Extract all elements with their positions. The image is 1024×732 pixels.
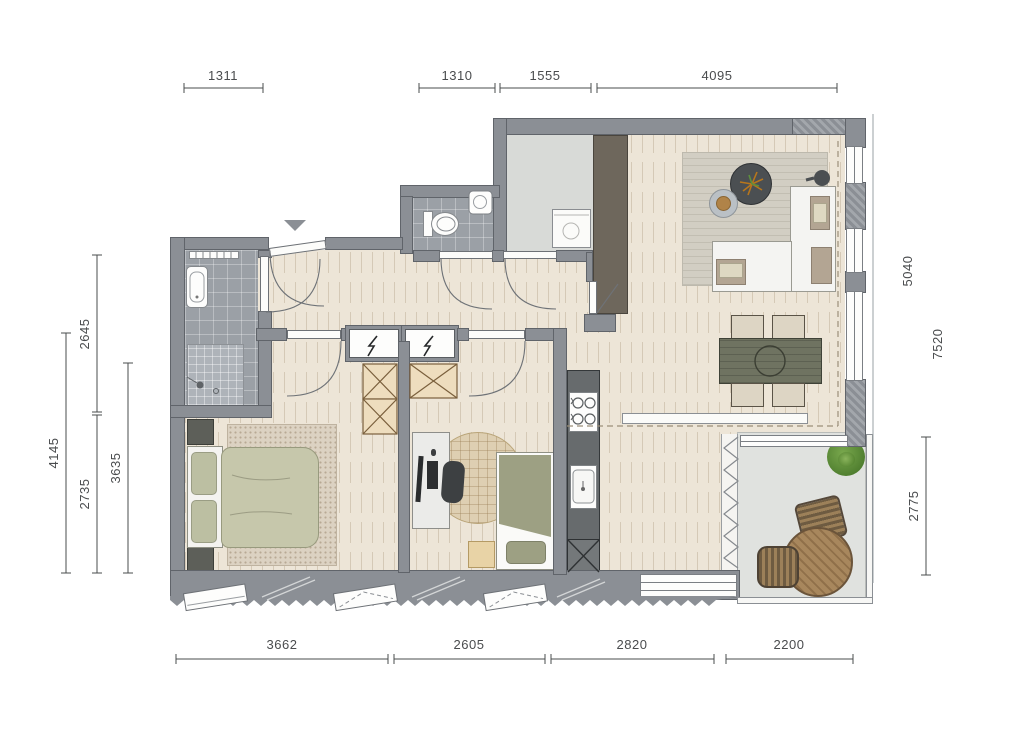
wall-bathroom-bottom [170, 405, 272, 418]
balcony-railing-bottom [737, 597, 873, 604]
electrical-cabinet [405, 329, 455, 358]
wall-wc-top [400, 185, 500, 198]
balcony-railing-right [866, 434, 873, 603]
tv-cabinet [593, 135, 628, 314]
living-door-leaf [589, 281, 597, 314]
towel-radiator [189, 251, 239, 259]
wc-door-leaf [439, 251, 493, 259]
bed-duvet [221, 447, 319, 548]
dim-label-left-4145: 4145 [46, 438, 61, 469]
wall-hall-south-a [256, 328, 287, 341]
wall-wc-hall-a [413, 250, 440, 262]
window-balcony [740, 435, 848, 447]
dining-chair [731, 315, 764, 339]
nightstand [187, 545, 214, 571]
wall-right-pillar-hatched [845, 182, 866, 230]
small-round-table [814, 170, 830, 186]
electrical-cabinet [349, 329, 399, 358]
sofa-throw [719, 263, 743, 278]
wall-entrance-right [325, 237, 403, 250]
pouf [468, 541, 495, 568]
toilet-bowl [431, 212, 459, 236]
bed-pillow [191, 500, 217, 543]
shower-area [187, 344, 244, 406]
window-right [846, 228, 863, 273]
dim-label-bottom-3: 2820 [617, 637, 648, 652]
washing-machine [552, 209, 591, 248]
wall-kitchen [553, 328, 567, 575]
sofa-cushion [811, 247, 832, 284]
floor-plan: 1311 1310 1555 4095 3662 2605 2820 2200 … [0, 0, 1024, 732]
kitchen-sink [570, 465, 597, 509]
wall-hall-living [586, 252, 593, 282]
wall-right-pillar-hatched [845, 379, 866, 447]
wall-bedroom-office-divider [398, 341, 410, 573]
dim-label-top-4: 4095 [702, 68, 733, 83]
wall-right-pillar [845, 118, 866, 148]
balcony-plant-detail [838, 452, 855, 467]
entrance-marker-icon [284, 220, 306, 231]
keyboard [427, 461, 438, 489]
side-table-top [716, 196, 731, 211]
dining-table [719, 338, 822, 384]
dining-chair [772, 383, 805, 407]
wall-right-pillar [845, 271, 866, 293]
dim-label-right-2775: 2775 [906, 491, 921, 522]
balcony-stool [757, 546, 799, 588]
window-right [846, 291, 863, 381]
dim-label-top-1: 1311 [208, 68, 238, 83]
bathroom-sink [186, 266, 208, 308]
office-chair [441, 460, 466, 503]
dim-label-bottom-1: 3662 [267, 637, 298, 652]
dim-label-top-2: 1310 [442, 68, 473, 83]
dim-label-right-5040: 5040 [900, 256, 915, 287]
counter-end-unit [567, 539, 600, 573]
sofa-pillow [813, 203, 827, 223]
single-bed-duvet [499, 455, 551, 537]
bathroom-door-leaf [260, 256, 269, 312]
bedroom-door-leaf [287, 330, 341, 339]
window-bottom [640, 574, 737, 598]
nightstand [187, 419, 214, 445]
bed-pillow [191, 452, 217, 495]
dim-label-left-2735: 2735 [77, 479, 92, 510]
office-door-leaf [468, 330, 525, 339]
single-bed-pillow [506, 541, 546, 564]
folding-door [721, 434, 738, 570]
dim-label-top-3: 1555 [530, 68, 561, 83]
wall-living-stub [584, 314, 616, 332]
storage-door-leaf [503, 251, 557, 259]
window-right [846, 146, 863, 184]
sideboard [622, 413, 808, 424]
dim-label-bottom-4: 2200 [774, 637, 805, 652]
dim-label-left-2645: 2645 [77, 319, 92, 350]
dim-label-bottom-2: 2605 [454, 637, 485, 652]
dining-chair [731, 383, 764, 407]
dim-label-right-7520: 7520 [930, 329, 945, 360]
wall-left-outer [170, 237, 185, 600]
cooktop [569, 392, 598, 432]
mouse [431, 449, 436, 456]
dim-label-left-3635: 3635 [108, 453, 123, 484]
dining-chair [772, 315, 805, 339]
